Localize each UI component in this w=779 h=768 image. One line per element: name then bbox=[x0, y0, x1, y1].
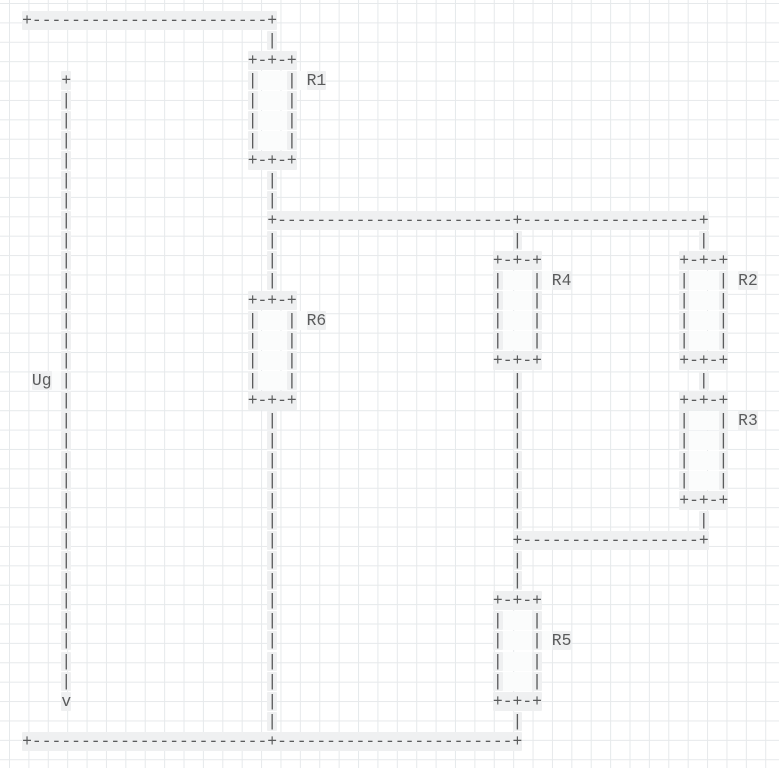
component-label: Ug bbox=[32, 371, 52, 390]
wire-segment: | bbox=[513, 391, 523, 410]
ascii-circuit-diagram: +------------------------+ | +-+-+ + | |… bbox=[22, 11, 758, 752]
wire-segment: | bbox=[287, 371, 297, 390]
diagram-row: | | | | bbox=[22, 672, 758, 692]
wire-segment: | bbox=[248, 331, 258, 350]
wire-segment: | bbox=[532, 672, 542, 691]
diagram-row: v | +-+-+ bbox=[22, 692, 758, 712]
component-body-fill bbox=[689, 411, 718, 430]
diagram-row: | | | bbox=[22, 571, 758, 591]
component-body-fill bbox=[258, 91, 287, 110]
component-body-fill bbox=[503, 291, 532, 310]
component-body-fill bbox=[503, 611, 532, 630]
wire-segment: | bbox=[493, 271, 503, 290]
wire-segment: | bbox=[493, 331, 503, 350]
component-body-fill bbox=[542, 271, 552, 290]
wire-segment: | bbox=[287, 91, 297, 110]
wire-segment: | bbox=[679, 311, 689, 330]
wire-segment: | bbox=[61, 171, 71, 190]
wire-segment: | bbox=[267, 491, 277, 510]
wire-segment: | bbox=[61, 291, 71, 310]
component-body-fill bbox=[52, 371, 62, 390]
diagram-row: | | | bbox=[22, 551, 758, 571]
component-body-fill bbox=[503, 652, 532, 671]
component-body-fill bbox=[503, 271, 532, 290]
component-body-fill bbox=[503, 672, 532, 691]
component-body-fill bbox=[297, 71, 307, 90]
wire-segment: | bbox=[719, 271, 729, 290]
wire-segment: | bbox=[513, 231, 523, 250]
wire-segment: | bbox=[719, 451, 729, 470]
wire-segment: | bbox=[679, 411, 689, 430]
component-body-fill bbox=[297, 311, 307, 330]
wire-segment: +------------------------+--------------… bbox=[267, 211, 708, 230]
wire-segment: | bbox=[267, 591, 277, 610]
wire-segment: | bbox=[532, 631, 542, 650]
wire-segment: +------------------+ bbox=[513, 531, 709, 550]
component-body-fill bbox=[689, 331, 718, 350]
wire-segment: | bbox=[61, 231, 71, 250]
wire-segment: | bbox=[61, 331, 71, 350]
wire-segment: | bbox=[61, 391, 71, 410]
component-body-fill bbox=[728, 271, 738, 290]
diagram-row: | | | | | bbox=[22, 431, 758, 451]
wire-segment: | bbox=[287, 71, 297, 90]
wire-segment: | bbox=[513, 551, 523, 570]
wire-segment: | bbox=[61, 191, 71, 210]
wire-segment: | bbox=[513, 511, 523, 530]
wire-segment: | bbox=[513, 491, 523, 510]
wire-segment: + bbox=[61, 71, 71, 90]
wire-segment: | bbox=[267, 531, 277, 550]
wire-segment: | bbox=[267, 672, 277, 691]
diagram-row: | | | R6 | | | | bbox=[22, 311, 758, 331]
wire-segment: | bbox=[61, 351, 71, 370]
diagram-row: | | | bbox=[22, 131, 758, 151]
diagram-row: | | | | bbox=[22, 611, 758, 631]
diagram-row: | | | | | bbox=[22, 471, 758, 491]
wire-segment: v bbox=[61, 692, 71, 711]
diagram-row: +-+-+ bbox=[22, 51, 758, 71]
wire-segment: | bbox=[493, 611, 503, 630]
wire-segment: | bbox=[267, 431, 277, 450]
wire-segment: | bbox=[267, 471, 277, 490]
wire-segment: | bbox=[699, 511, 709, 530]
diagram-row: | +-+-+ | +-+-+ bbox=[22, 391, 758, 411]
wire-segment: | bbox=[493, 631, 503, 650]
diagram-row: | | +-+-+ +-+-+ bbox=[22, 251, 758, 271]
wire-segment: +-+-+ bbox=[248, 291, 297, 310]
wire-segment: | bbox=[679, 451, 689, 470]
wire-segment: | bbox=[61, 631, 71, 650]
diagram-row: | | | | | R3 bbox=[22, 411, 758, 431]
wire-segment: | bbox=[287, 331, 297, 350]
wire-segment: | bbox=[267, 411, 277, 430]
wire-segment: | bbox=[267, 231, 277, 250]
component-body-fill bbox=[542, 631, 552, 650]
wire-segment: | bbox=[61, 451, 71, 470]
wire-segment: | bbox=[61, 571, 71, 590]
diagram-row: | +-+-+ | | | | bbox=[22, 291, 758, 311]
wire-segment: | bbox=[61, 591, 71, 610]
wire-segment: | bbox=[719, 291, 729, 310]
diagram-row: | | | | | bbox=[22, 451, 758, 471]
wire-segment: | bbox=[493, 291, 503, 310]
wire-segment: | bbox=[679, 291, 689, 310]
wire-segment: | bbox=[248, 131, 258, 150]
wire-segment: | bbox=[61, 491, 71, 510]
wire-segment: | bbox=[679, 271, 689, 290]
wire-segment: | bbox=[719, 431, 729, 450]
wire-segment: | bbox=[267, 511, 277, 530]
component-label: R3 bbox=[738, 411, 758, 430]
component-body-fill bbox=[258, 371, 287, 390]
wire-segment: +-+-+ bbox=[679, 251, 728, 270]
component-body-fill bbox=[689, 291, 718, 310]
wire-segment: | bbox=[248, 351, 258, 370]
grid-canvas: +------------------------+ | +-+-+ + | |… bbox=[0, 0, 779, 768]
wire-segment: +-+-+ bbox=[493, 251, 542, 270]
component-body-fill bbox=[258, 71, 287, 90]
diagram-row: | +------------------------+------------… bbox=[22, 211, 758, 231]
wire-segment: | bbox=[61, 672, 71, 691]
wire-segment: +-+-+ bbox=[679, 391, 728, 410]
wire-segment: +-+-+ bbox=[248, 51, 297, 70]
wire-segment: +-+-+ bbox=[493, 351, 542, 370]
wire-segment: | bbox=[61, 652, 71, 671]
wire-segment: | bbox=[679, 431, 689, 450]
component-body-fill bbox=[689, 471, 718, 490]
wire-segment: | bbox=[699, 231, 709, 250]
diagram-row: | | | | R5 bbox=[22, 631, 758, 651]
component-label: R4 bbox=[552, 271, 572, 290]
wire-segment: | bbox=[61, 471, 71, 490]
wire-segment: | bbox=[719, 471, 729, 490]
wire-segment: | bbox=[679, 471, 689, 490]
wire-segment: | bbox=[248, 371, 258, 390]
diagram-row: | | bbox=[22, 712, 758, 732]
wire-segment: +------------------------+ bbox=[22, 11, 277, 30]
wire-segment: +------------------------+--------------… bbox=[22, 732, 522, 751]
wire-segment: | bbox=[532, 652, 542, 671]
wire-segment: | bbox=[61, 131, 71, 150]
wire-segment: | bbox=[267, 571, 277, 590]
wire-segment: +-+-+ bbox=[248, 391, 297, 410]
diagram-row: | | +------------------+ bbox=[22, 531, 758, 551]
wire-segment: | bbox=[248, 71, 258, 90]
wire-segment: | bbox=[61, 151, 71, 170]
wire-segment: | bbox=[61, 431, 71, 450]
component-body-fill bbox=[503, 631, 532, 650]
diagram-row: | bbox=[22, 31, 758, 51]
wire-segment: | bbox=[532, 331, 542, 350]
wire-segment: | bbox=[287, 311, 297, 330]
wire-segment: +-+-+ bbox=[493, 692, 542, 711]
wire-segment: | bbox=[61, 271, 71, 290]
component-label: R2 bbox=[738, 271, 758, 290]
wire-segment: | bbox=[513, 471, 523, 490]
wire-segment: | bbox=[513, 712, 523, 731]
wire-segment: | bbox=[719, 411, 729, 430]
wire-segment: | bbox=[513, 371, 523, 390]
wire-segment: | bbox=[61, 531, 71, 550]
wire-segment: +-+-+ bbox=[493, 591, 542, 610]
component-body-fill bbox=[689, 431, 718, 450]
diagram-row: | | +-+-+ bbox=[22, 591, 758, 611]
diagram-row: | | bbox=[22, 171, 758, 191]
wire-segment: | bbox=[267, 712, 277, 731]
wire-segment: | bbox=[287, 111, 297, 130]
diagram-row: | | | | | | | bbox=[22, 331, 758, 351]
wire-segment: | bbox=[267, 652, 277, 671]
component-body-fill bbox=[689, 311, 718, 330]
diagram-row: | | | +-+-+ +-+-+ bbox=[22, 351, 758, 371]
component-label: R1 bbox=[307, 71, 327, 90]
diagram-row: | | | | bbox=[22, 511, 758, 531]
wire-segment: | bbox=[267, 251, 277, 270]
wire-segment: +-+-+ bbox=[248, 151, 297, 170]
component-body-fill bbox=[689, 451, 718, 470]
wire-segment: | bbox=[493, 672, 503, 691]
wire-segment: +-+-+ bbox=[679, 491, 728, 510]
component-body-fill bbox=[258, 111, 287, 130]
diagram-row: Ug | | | | | bbox=[22, 371, 758, 391]
wire-segment: | bbox=[61, 511, 71, 530]
wire-segment: | bbox=[532, 611, 542, 630]
wire-segment: | bbox=[679, 331, 689, 350]
wire-segment: | bbox=[513, 571, 523, 590]
component-label: R6 bbox=[307, 311, 327, 330]
component-body-fill bbox=[258, 331, 287, 350]
diagram-row: | | | | bbox=[22, 652, 758, 672]
wire-segment: | bbox=[267, 31, 277, 50]
wire-segment: | bbox=[287, 351, 297, 370]
diagram-row: | | | bbox=[22, 91, 758, 111]
wire-segment: | bbox=[719, 331, 729, 350]
wire-segment: | bbox=[719, 311, 729, 330]
wire-segment: | bbox=[532, 291, 542, 310]
wire-segment: | bbox=[513, 451, 523, 470]
component-body-fill bbox=[689, 271, 718, 290]
wire-segment: | bbox=[61, 611, 71, 630]
component-body-fill bbox=[258, 351, 287, 370]
component-body-fill bbox=[728, 411, 738, 430]
wire-segment: | bbox=[61, 551, 71, 570]
diagram-row: +------------------------+--------------… bbox=[22, 732, 758, 752]
wire-segment: +-+-+ bbox=[679, 351, 728, 370]
wire-segment: | bbox=[267, 611, 277, 630]
diagram-row: | +-+-+ bbox=[22, 151, 758, 171]
wire-segment: | bbox=[287, 131, 297, 150]
wire-segment: | bbox=[532, 271, 542, 290]
wire-segment: | bbox=[513, 411, 523, 430]
diagram-row: | | bbox=[22, 191, 758, 211]
diagram-row: | | | | R4 | | R2 bbox=[22, 271, 758, 291]
wire-segment: | bbox=[61, 91, 71, 110]
wire-segment: | bbox=[61, 211, 71, 230]
wire-segment: | bbox=[61, 371, 71, 390]
component-label: R5 bbox=[552, 631, 572, 650]
wire-segment: | bbox=[267, 551, 277, 570]
wire-segment: | bbox=[493, 652, 503, 671]
wire-segment: | bbox=[61, 311, 71, 330]
wire-segment: | bbox=[267, 271, 277, 290]
wire-segment: | bbox=[699, 371, 709, 390]
diagram-row: + | | R1 bbox=[22, 71, 758, 91]
wire-segment: | bbox=[248, 91, 258, 110]
component-body-fill bbox=[503, 311, 532, 330]
wire-segment: | bbox=[267, 692, 277, 711]
component-body-fill bbox=[258, 311, 287, 330]
wire-segment: | bbox=[267, 631, 277, 650]
component-body-fill bbox=[503, 331, 532, 350]
wire-segment: | bbox=[61, 251, 71, 270]
wire-segment: | bbox=[267, 191, 277, 210]
wire-segment: | bbox=[493, 311, 503, 330]
wire-segment: | bbox=[532, 311, 542, 330]
wire-segment: | bbox=[267, 171, 277, 190]
diagram-row: | | | +-+-+ bbox=[22, 491, 758, 511]
wire-segment: | bbox=[61, 111, 71, 130]
diagram-row: +------------------------+ bbox=[22, 11, 758, 31]
wire-segment: | bbox=[248, 111, 258, 130]
diagram-row: | | | | bbox=[22, 231, 758, 251]
wire-segment: | bbox=[248, 311, 258, 330]
component-body-fill bbox=[258, 131, 287, 150]
wire-segment: | bbox=[61, 411, 71, 430]
wire-segment: | bbox=[513, 431, 523, 450]
wire-segment: | bbox=[267, 451, 277, 470]
diagram-row: | | | bbox=[22, 111, 758, 131]
